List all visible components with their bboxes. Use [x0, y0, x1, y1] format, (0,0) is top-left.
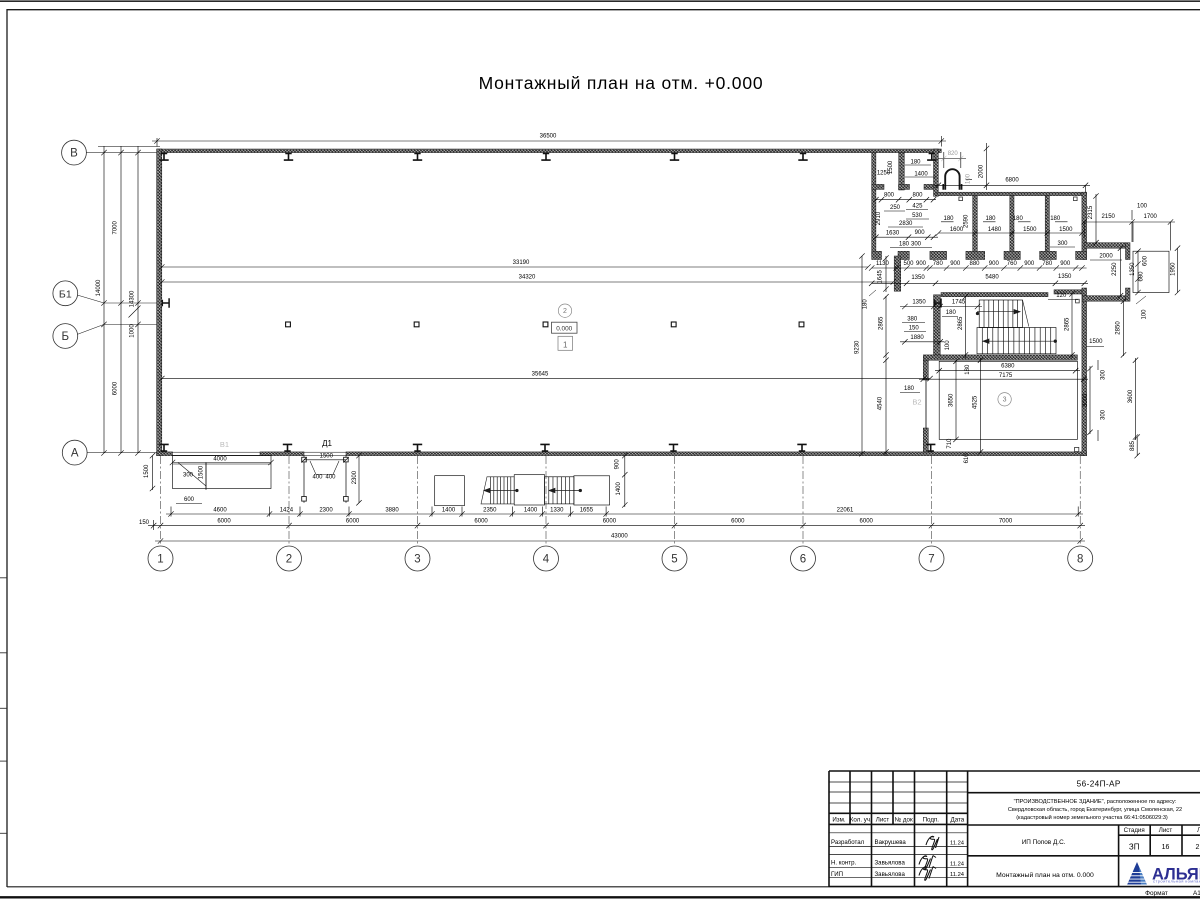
svg-text:780: 780: [933, 261, 944, 267]
svg-text:1500: 1500: [144, 464, 150, 478]
svg-text:300: 300: [1057, 241, 1068, 247]
svg-text:2300: 2300: [319, 507, 333, 513]
svg-text:250: 250: [890, 205, 901, 211]
svg-text:1500: 1500: [1089, 339, 1103, 345]
svg-text:6000: 6000: [860, 518, 874, 524]
svg-text:1700: 1700: [1144, 214, 1158, 220]
svg-text:150: 150: [139, 520, 150, 526]
svg-text:3880: 3880: [385, 507, 399, 513]
svg-text:Завьялова: Завьялова: [875, 860, 906, 867]
svg-text:3650: 3650: [948, 393, 954, 407]
svg-text:180: 180: [985, 216, 996, 222]
svg-text:16: 16: [1162, 844, 1170, 851]
svg-text:1400: 1400: [616, 481, 622, 495]
svg-text:780: 780: [1042, 261, 1053, 267]
svg-text:820: 820: [948, 151, 959, 157]
svg-text:1350: 1350: [1130, 262, 1136, 276]
svg-text:(кадастровый номер земельного: (кадастровый номер земельного участка 66…: [1016, 814, 1168, 821]
svg-text:1400: 1400: [442, 507, 456, 513]
svg-text:710: 710: [947, 438, 953, 449]
svg-text:5480: 5480: [985, 275, 999, 281]
svg-text:"ПРОИЗВОДСТВЕННОЕ ЗДАНИЕ", рас: "ПРОИЗВОДСТВЕННОЕ ЗДАНИЕ", расположенное…: [1014, 799, 1177, 805]
svg-text:425: 425: [912, 204, 923, 210]
svg-text:880: 880: [969, 261, 980, 267]
svg-text:11.24: 11.24: [950, 862, 965, 868]
svg-text:14300: 14300: [130, 290, 136, 307]
svg-text:900: 900: [1024, 261, 1035, 267]
svg-text:Подп.: Подп.: [923, 817, 940, 824]
svg-text:22061: 22061: [837, 507, 854, 513]
svg-text:2300: 2300: [352, 470, 358, 484]
svg-text:2150: 2150: [1102, 214, 1116, 220]
svg-text:Стадия: Стадия: [1124, 827, 1145, 834]
svg-text:1500: 1500: [1059, 227, 1073, 233]
svg-text:1655: 1655: [580, 507, 594, 513]
svg-text:В1: В1: [220, 440, 229, 449]
svg-text:2865: 2865: [1064, 317, 1070, 331]
svg-text:4600: 4600: [213, 507, 227, 513]
svg-text:2830: 2830: [899, 221, 913, 227]
svg-text:7000: 7000: [999, 518, 1013, 524]
svg-text:2865: 2865: [879, 316, 885, 330]
svg-text:Д1: Д1: [322, 439, 332, 448]
svg-text:100: 100: [966, 173, 972, 184]
svg-text:2: 2: [563, 308, 567, 315]
svg-text:600: 600: [184, 497, 195, 503]
svg-text:610: 610: [964, 453, 970, 464]
svg-text:8: 8: [1077, 554, 1083, 566]
svg-text:7: 7: [928, 554, 934, 566]
svg-text:Б1: Б1: [59, 288, 72, 300]
svg-text:1600: 1600: [950, 227, 964, 233]
svg-text:6000: 6000: [603, 518, 617, 524]
svg-text:Кол. уч.: Кол. уч.: [850, 817, 872, 824]
svg-text:180: 180: [946, 310, 957, 316]
svg-text:34320: 34320: [519, 275, 536, 281]
svg-text:6800: 6800: [1005, 178, 1019, 184]
svg-text:9230: 9230: [855, 340, 861, 354]
svg-text:1630: 1630: [886, 231, 900, 237]
svg-text:100: 100: [945, 340, 951, 351]
svg-text:5: 5: [671, 554, 677, 566]
svg-text:Лист: Лист: [1159, 827, 1173, 834]
svg-text:180: 180: [943, 216, 954, 222]
svg-text:Завьялова: Завьялова: [875, 871, 906, 878]
svg-text:В2: В2: [912, 397, 921, 406]
svg-text:Формат: Формат: [1145, 890, 1168, 897]
svg-text:1400: 1400: [914, 172, 928, 178]
svg-text:А1: А1: [1193, 890, 1200, 897]
svg-text:2850: 2850: [1115, 321, 1121, 335]
svg-text:600: 600: [1139, 271, 1145, 282]
svg-text:1500: 1500: [199, 465, 205, 479]
svg-text:2865: 2865: [958, 316, 964, 330]
svg-text:4540: 4540: [878, 396, 884, 410]
svg-text:1350: 1350: [912, 300, 926, 306]
svg-text:ГИП: ГИП: [831, 871, 843, 878]
svg-text:900: 900: [915, 230, 926, 236]
svg-text:1: 1: [563, 340, 568, 349]
svg-text:180: 180: [1013, 216, 1024, 222]
svg-text:380: 380: [907, 317, 918, 323]
svg-text:6000: 6000: [346, 518, 360, 524]
svg-text:400: 400: [325, 475, 336, 481]
svg-text:1400: 1400: [524, 507, 538, 513]
svg-text:строительная компания: строительная компания: [1153, 879, 1200, 884]
svg-text:6000: 6000: [731, 518, 745, 524]
svg-text:7000: 7000: [113, 220, 119, 234]
svg-text:900: 900: [916, 261, 927, 267]
svg-text:Монтажный план на отм. +0.000: Монтажный план на отм. +0.000: [479, 73, 764, 93]
svg-text:300: 300: [1101, 409, 1107, 420]
svg-text:180: 180: [1050, 216, 1061, 222]
svg-text:100: 100: [1137, 204, 1148, 210]
svg-text:300: 300: [1101, 369, 1107, 380]
svg-text:900: 900: [615, 459, 621, 470]
svg-text:35645: 35645: [532, 372, 549, 378]
svg-text:Свердловская область, город Ек: Свердловская область, город Екатеринбург…: [1008, 807, 1182, 813]
svg-text:В: В: [70, 148, 78, 160]
svg-text:150: 150: [909, 325, 920, 331]
svg-text:Лист: Лист: [876, 817, 890, 824]
svg-text:33190: 33190: [513, 260, 530, 266]
svg-text:2315: 2315: [1088, 205, 1094, 219]
svg-text:900: 900: [950, 261, 961, 267]
svg-text:2: 2: [1196, 844, 1200, 851]
svg-text:1424: 1424: [280, 507, 294, 513]
svg-text:180: 180: [899, 241, 910, 247]
svg-text:Дата: Дата: [951, 817, 965, 824]
svg-text:1500: 1500: [1023, 227, 1037, 233]
svg-text:300: 300: [911, 241, 922, 247]
svg-text:14000: 14000: [96, 279, 102, 296]
svg-text:Разработал: Разработал: [831, 839, 865, 846]
svg-text:180: 180: [862, 299, 868, 310]
svg-text:2590: 2590: [964, 214, 970, 228]
svg-text:Изм.: Изм.: [832, 817, 846, 824]
svg-text:1500: 1500: [888, 160, 894, 174]
svg-text:4000: 4000: [213, 457, 227, 463]
svg-text:180: 180: [904, 386, 915, 392]
svg-text:180: 180: [910, 160, 921, 166]
svg-text:56-24П-АР: 56-24П-АР: [1077, 780, 1121, 789]
svg-text:1500: 1500: [320, 454, 334, 460]
svg-text:400: 400: [312, 475, 323, 481]
svg-text:2250: 2250: [1112, 262, 1118, 276]
svg-text:300: 300: [183, 473, 194, 479]
svg-text:120: 120: [1056, 293, 1067, 299]
svg-text:1350: 1350: [1058, 274, 1072, 280]
svg-text:Б: Б: [62, 331, 70, 343]
svg-text:800: 800: [884, 193, 895, 199]
svg-text:1130: 1130: [876, 261, 890, 267]
svg-text:4525: 4525: [973, 395, 979, 409]
svg-text:800: 800: [912, 193, 923, 199]
svg-text:1000: 1000: [130, 324, 136, 338]
svg-text:6000: 6000: [113, 381, 119, 395]
svg-text:2: 2: [286, 554, 292, 566]
svg-text:2000: 2000: [1099, 254, 1113, 260]
svg-text:6380: 6380: [1001, 364, 1015, 370]
svg-text:А: А: [71, 448, 79, 460]
svg-text:6000: 6000: [474, 518, 488, 524]
svg-text:180: 180: [965, 364, 971, 375]
svg-text:2910: 2910: [876, 211, 882, 225]
svg-text:900: 900: [1060, 261, 1071, 267]
svg-text:11.24: 11.24: [950, 841, 965, 847]
svg-text:3: 3: [1003, 397, 1007, 404]
svg-text:3: 3: [414, 554, 420, 566]
svg-text:1880: 1880: [910, 335, 924, 341]
svg-text:1: 1: [157, 554, 163, 566]
svg-text:11.24: 11.24: [950, 872, 965, 878]
svg-text:600: 600: [1143, 255, 1149, 266]
svg-text:1330: 1330: [550, 507, 564, 513]
svg-text:Н. контр.: Н. контр.: [831, 860, 856, 867]
svg-text:530: 530: [912, 213, 923, 219]
svg-text:1645: 1645: [878, 269, 884, 283]
svg-text:6000: 6000: [217, 518, 231, 524]
svg-text:ИП Попов Д.С.: ИП Попов Д.С.: [1022, 839, 1066, 846]
svg-text:6: 6: [800, 554, 806, 566]
svg-text:Монтажный план на отм. 0.000: Монтажный план на отм. 0.000: [996, 871, 1094, 879]
svg-text:900: 900: [989, 261, 1000, 267]
svg-text:36500: 36500: [540, 134, 557, 140]
svg-text:1745: 1745: [952, 300, 966, 306]
svg-text:885: 885: [1130, 440, 1136, 451]
svg-text:500: 500: [903, 261, 914, 267]
svg-text:3000: 3000: [1083, 393, 1089, 407]
svg-text:1950: 1950: [1171, 262, 1177, 276]
svg-text:№ док: № док: [895, 817, 913, 824]
svg-text:4: 4: [543, 554, 550, 566]
svg-text:Вакрушева: Вакрушева: [875, 839, 907, 846]
svg-text:2350: 2350: [483, 507, 497, 513]
svg-text:760: 760: [1007, 261, 1018, 267]
svg-text:0.000: 0.000: [556, 325, 572, 332]
svg-text:1350: 1350: [911, 275, 925, 281]
svg-text:100: 100: [1142, 309, 1148, 320]
svg-text:1480: 1480: [988, 227, 1002, 233]
svg-text:2000: 2000: [979, 164, 985, 178]
svg-text:7175: 7175: [999, 373, 1013, 379]
svg-text:43000: 43000: [611, 534, 628, 540]
svg-text:ЗП: ЗП: [1129, 843, 1140, 852]
svg-text:3600: 3600: [1128, 389, 1134, 403]
